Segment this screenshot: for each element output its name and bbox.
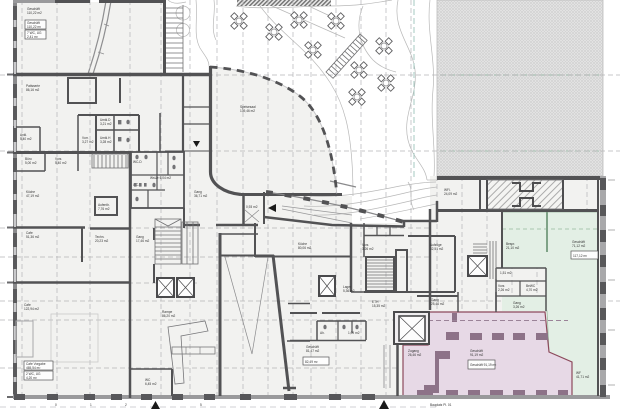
svg-text:17,46 m2: 17,46 m2 (136, 239, 150, 243)
svg-text:Geschäft 91,19 m²: Geschäft 91,19 m² (470, 363, 496, 367)
svg-text:0,93 m2: 0,93 m2 (246, 205, 258, 209)
svg-text:WC-D: WC-D (133, 160, 142, 164)
svg-text:Ah.: Ah. (320, 331, 325, 335)
svg-text:1,09 m2: 1,09 m2 (348, 331, 360, 335)
svg-text:4,70 m2: 4,70 m2 (526, 288, 538, 292)
svg-text:3,28 m2: 3,28 m2 (100, 140, 112, 144)
svg-text:3,26 m2: 3,26 m2 (513, 305, 525, 309)
svg-text:86,16 m2: 86,16 m2 (26, 88, 40, 92)
svg-text:71,12 m2: 71,12 m2 (572, 244, 586, 248)
svg-text:139,46 m2: 139,46 m2 (240, 109, 255, 113)
svg-text:465,54 m²: 465,54 m² (26, 366, 40, 370)
svg-text:51,36 m2: 51,36 m2 (26, 235, 40, 239)
svg-text:21,10 m2: 21,10 m2 (506, 246, 520, 250)
svg-text:82,49 m²: 82,49 m² (305, 360, 318, 364)
svg-text:2,26 m2: 2,26 m2 (498, 288, 510, 292)
svg-text:6,45 m2: 6,45 m2 (145, 382, 157, 386)
svg-text:3,26 m2: 3,26 m2 (362, 247, 374, 251)
svg-text:5,40 m2: 5,40 m2 (20, 137, 32, 141)
svg-text:122,94 m2: 122,94 m2 (24, 307, 39, 311)
svg-text:0: 0 (55, 403, 57, 407)
svg-text:110,22 m2: 110,22 m2 (27, 11, 42, 15)
svg-text:Bauplatz Pl. 01: Bauplatz Pl. 01 (430, 403, 452, 407)
svg-text:2,41 m²: 2,41 m² (27, 35, 38, 39)
svg-text:3,27 m2: 3,27 m2 (82, 140, 94, 144)
svg-text:5: 5 (200, 403, 202, 407)
svg-text:86,20 m2: 86,20 m2 (162, 314, 176, 318)
svg-text:110,22 m²: 110,22 m² (27, 25, 41, 29)
svg-text:7,76 m2: 7,76 m2 (98, 207, 110, 211)
svg-text:117,12 m²: 117,12 m² (573, 254, 587, 258)
svg-text:1,51 m2: 1,51 m2 (500, 271, 512, 275)
svg-text:5,00 m2: 5,00 m2 (25, 161, 37, 165)
svg-text:5,40 m2: 5,40 m2 (55, 161, 67, 165)
svg-text:3,21 m2: 3,21 m2 (100, 122, 112, 126)
svg-text:24,09 m2: 24,09 m2 (444, 192, 458, 196)
svg-text:26,46 m2: 26,46 m2 (408, 353, 422, 357)
svg-text:20,23 m2: 20,23 m2 (95, 239, 109, 243)
svg-text:41,71 m2: 41,71 m2 (576, 375, 590, 379)
svg-text:36,71 m2: 36,71 m2 (194, 194, 208, 198)
svg-text:81,47 m2: 81,47 m2 (306, 349, 320, 353)
svg-text:4,20 m²: 4,20 m² (26, 376, 37, 380)
svg-text:47,19 m2: 47,19 m2 (26, 194, 40, 198)
svg-text:1: 1 (90, 403, 92, 407)
svg-text:15,35 m2: 15,35 m2 (372, 304, 386, 308)
svg-text:32,51 m2: 32,51 m2 (430, 247, 444, 251)
svg-text:25,46 m2: 25,46 m2 (431, 302, 445, 306)
svg-text:80,06 m2: 80,06 m2 (298, 246, 312, 250)
svg-text:91,19 m2: 91,19 m2 (470, 353, 484, 357)
svg-text:5,36 m2: 5,36 m2 (343, 289, 355, 293)
svg-text:WsUe 6,04 m2: WsUe 6,04 m2 (150, 176, 171, 180)
svg-text:2: 2 (125, 403, 127, 407)
